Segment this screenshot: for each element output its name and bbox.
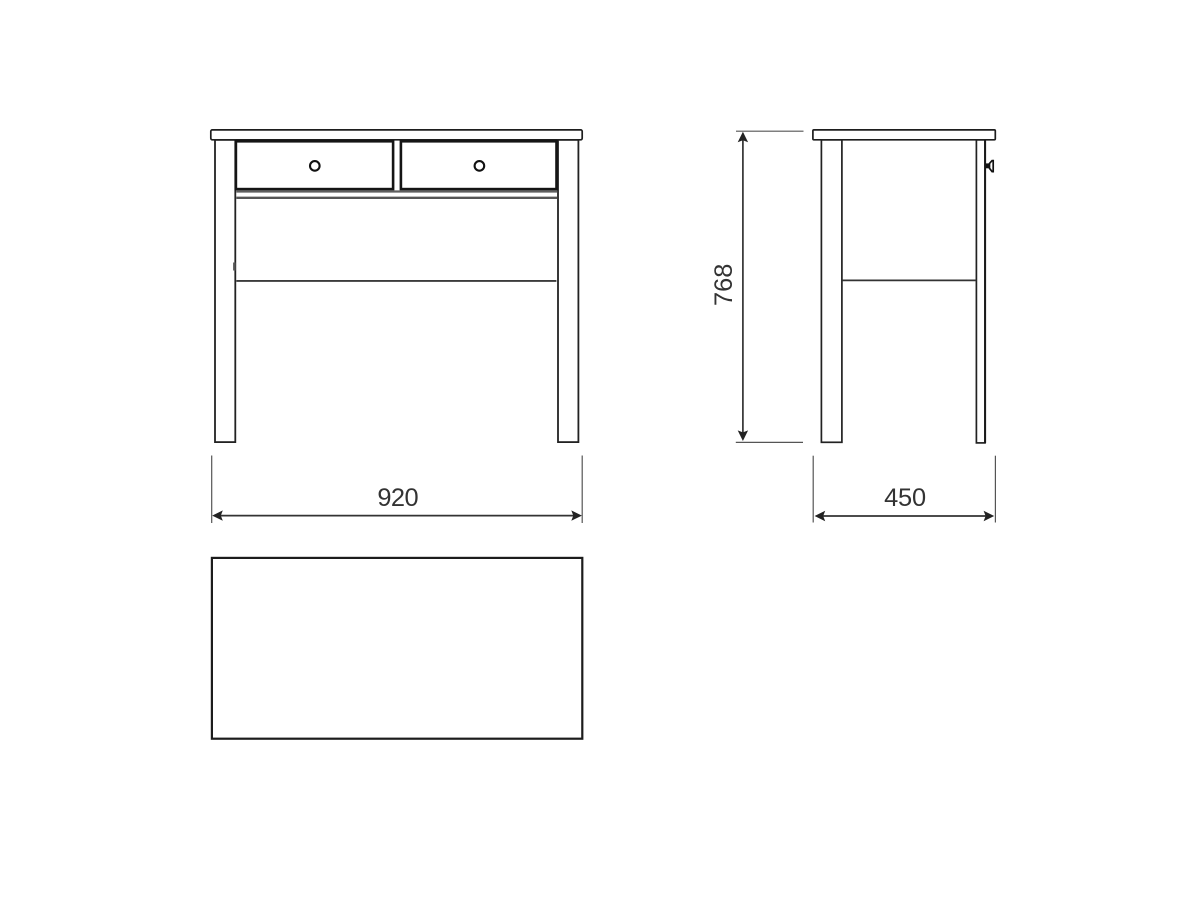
svg-text:450: 450 (884, 484, 926, 512)
svg-text:920: 920 (377, 484, 418, 512)
svg-text:768: 768 (710, 264, 738, 306)
